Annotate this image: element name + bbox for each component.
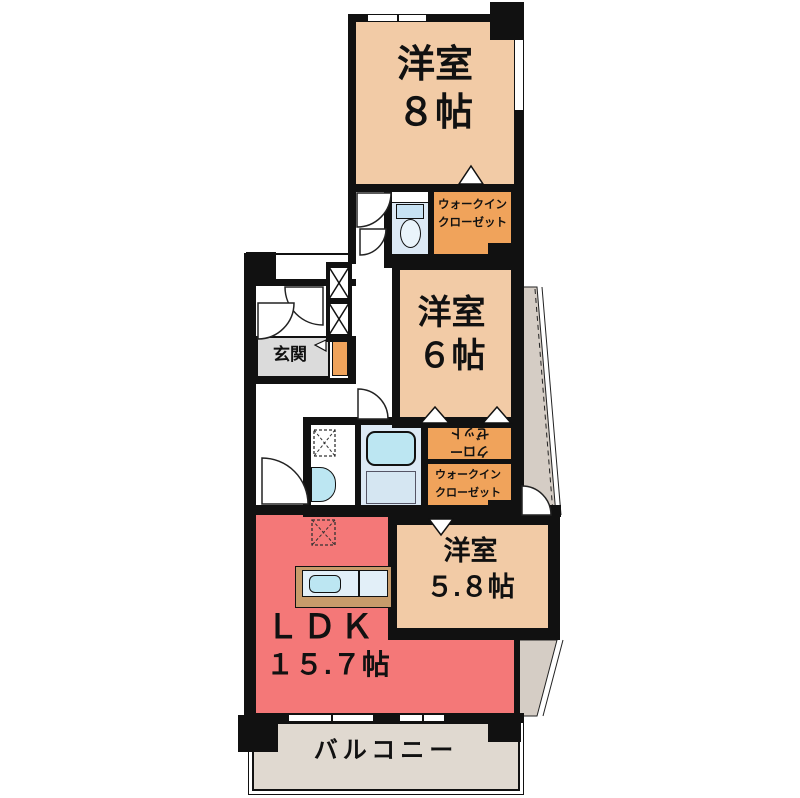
wall xyxy=(388,515,560,525)
kitchen-sink xyxy=(309,575,341,593)
bedroom58-label: 洋室 ５.８帖 xyxy=(388,533,553,606)
fridge-position-icon xyxy=(311,519,336,546)
walkin-closet-mid-label: ウォークイン クローゼット xyxy=(424,467,512,502)
shaft-x-icon xyxy=(329,303,349,335)
bath-panel xyxy=(366,471,416,504)
closet-line2: クローゼット xyxy=(424,485,512,503)
wall xyxy=(355,421,361,507)
bathtub xyxy=(366,431,416,466)
bedroom8-label: 洋室 ８帖 xyxy=(356,42,514,137)
entrance-label: 玄関 xyxy=(258,344,322,365)
washbasin xyxy=(311,467,336,502)
walkin-closet-top-label: ウォークイン クローゼット xyxy=(434,197,511,233)
wall xyxy=(348,14,356,192)
window-tick xyxy=(397,15,399,21)
side-alcove-lower xyxy=(519,638,567,718)
closet-line2: ゼット xyxy=(428,425,511,443)
closet-rotated-label: クロー ゼット xyxy=(428,425,511,460)
wall xyxy=(514,640,520,717)
door-arc xyxy=(357,193,391,227)
wall xyxy=(244,713,524,723)
closet-line1: ウォークイン xyxy=(434,197,511,215)
balcony-text: バルコニー xyxy=(252,736,520,766)
toilet-bowl xyxy=(400,219,421,248)
window xyxy=(289,714,373,722)
wall-thin xyxy=(273,253,350,255)
wall xyxy=(348,336,356,384)
closet-line1: クロー xyxy=(428,443,511,461)
room-name: ＬＤＫ xyxy=(266,606,441,647)
window xyxy=(368,14,426,22)
room-name: 洋室 xyxy=(388,533,553,569)
wall xyxy=(511,184,524,520)
closet-line2: クローゼット xyxy=(434,215,511,233)
window-tick xyxy=(422,715,424,721)
shaft-x-icon xyxy=(329,267,349,299)
kitchen-counter-divider xyxy=(358,570,360,597)
balcony-label: バルコニー xyxy=(252,736,520,766)
toilet-tank xyxy=(396,204,424,219)
wall xyxy=(246,505,392,515)
washer-position-icon xyxy=(313,429,336,457)
toilet-top-strip xyxy=(392,192,428,203)
door-arc xyxy=(262,458,308,504)
room-name: 洋室 xyxy=(356,42,514,90)
ldk-label: ＬＤＫ １５.７帖 xyxy=(256,606,441,682)
door-swing-triangle xyxy=(482,406,512,424)
room-name: 洋室 xyxy=(392,292,511,335)
room-size: １５.７帖 xyxy=(266,647,441,682)
wall xyxy=(348,184,524,192)
room-size: ８帖 xyxy=(356,90,514,138)
door-arc xyxy=(522,486,551,515)
window xyxy=(400,714,444,722)
room-size: ６帖 xyxy=(392,335,511,378)
entrance-text: 玄関 xyxy=(258,344,322,365)
corner-pillar xyxy=(488,243,524,270)
door-arc xyxy=(258,303,294,339)
room-size: ５.８帖 xyxy=(388,569,553,605)
window xyxy=(514,40,524,110)
wall xyxy=(244,253,256,723)
side-alcove-upper xyxy=(522,285,567,518)
door-swing-triangle xyxy=(458,165,484,185)
corner-pillar xyxy=(490,2,524,40)
wall xyxy=(256,378,356,384)
door-arc xyxy=(360,229,386,255)
closet-line1: ウォークイン xyxy=(424,467,512,485)
window-tick xyxy=(331,715,333,721)
floorplan-canvas: 洋室 ８帖 ウォークイン クローゼット 洋室 ６帖 玄関 クロー ゼット ウォー… xyxy=(0,0,800,798)
shoe-cabinet xyxy=(332,336,348,376)
door-arc xyxy=(358,389,388,419)
door-swing-triangle xyxy=(420,406,450,424)
bedroom6-label: 洋室 ６帖 xyxy=(392,292,511,377)
